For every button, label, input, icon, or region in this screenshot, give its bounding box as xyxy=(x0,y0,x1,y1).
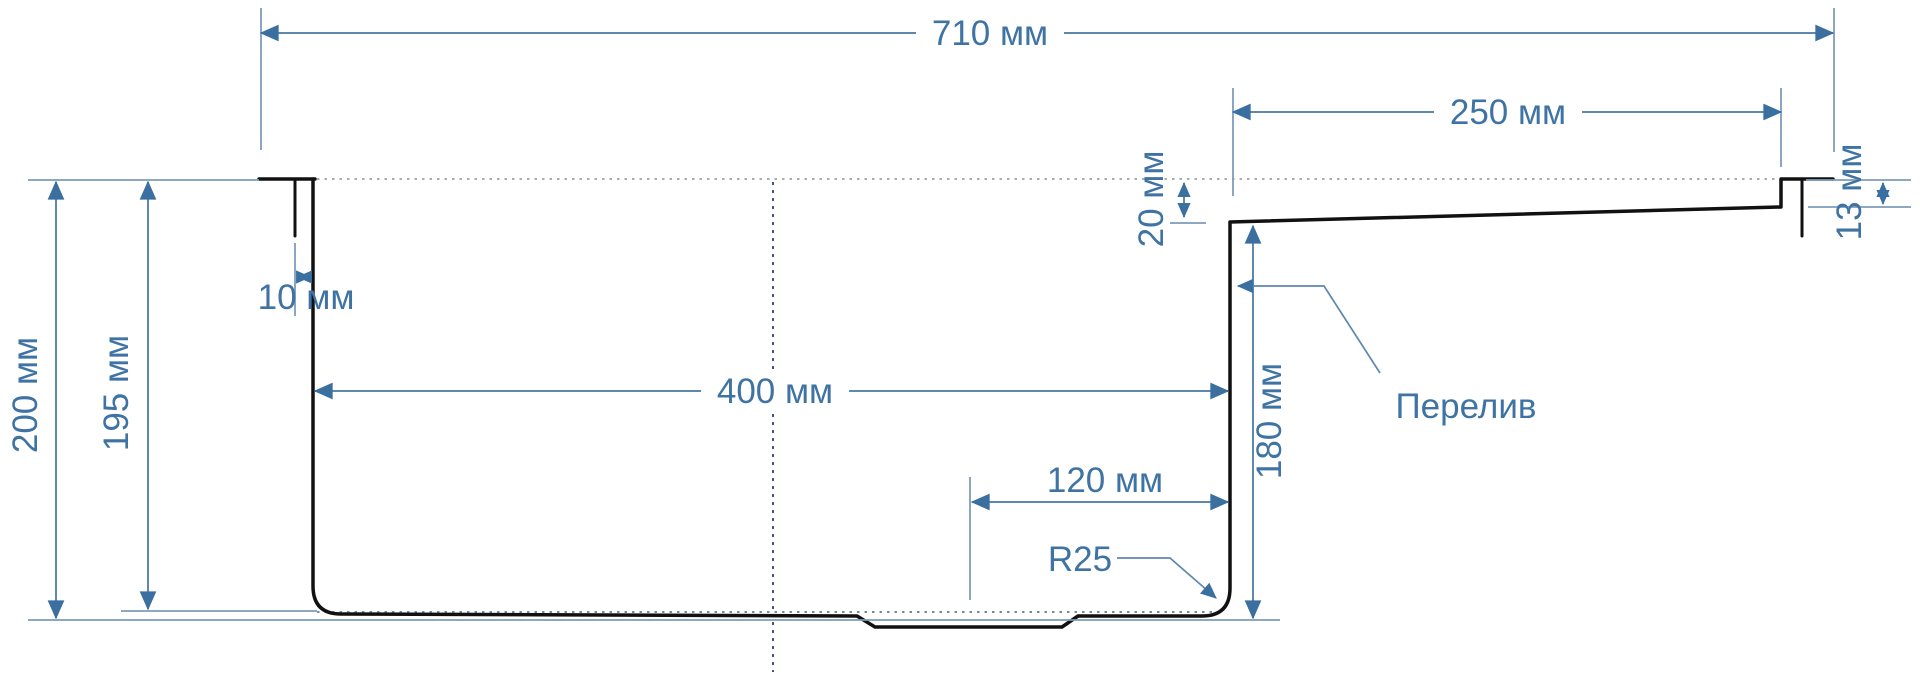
reference-lines xyxy=(317,179,1779,672)
dimension-label: 195 мм xyxy=(97,335,136,451)
dim-bowl-width: 400 мм xyxy=(315,371,1228,411)
dimension-label: 400 мм xyxy=(717,372,833,411)
dim-drain-offset: 120 мм xyxy=(970,461,1228,600)
dim-inner-depth: 195 мм xyxy=(97,182,317,611)
dimension-label: 250 мм xyxy=(1450,93,1566,132)
dim-drainboard-drop: 20 мм xyxy=(1132,151,1206,248)
dim-rim-edge-height: 13 мм xyxy=(1806,144,1911,241)
radius-label: R25 xyxy=(1048,540,1112,579)
dim-overall-width: 710 мм xyxy=(261,8,1834,152)
dimension-label: 710 мм xyxy=(932,14,1048,53)
dimension-label: 10 мм xyxy=(258,278,355,317)
dim-mounting-lip: 10 мм xyxy=(258,243,355,317)
dimension-label: 120 мм xyxy=(1047,461,1163,500)
overflow-label: Перелив xyxy=(1396,387,1537,426)
sink-dimension-drawing: 710 мм 250 мм 400 мм 120 мм 200 мм 195 м… xyxy=(0,0,1920,684)
dimension-label: 20 мм xyxy=(1132,151,1171,248)
leader-line xyxy=(1117,558,1216,598)
technical-drawing: 710 мм 250 мм 400 мм 120 мм 200 мм 195 м… xyxy=(0,0,1920,684)
sink-outline xyxy=(259,179,1833,627)
dimension-label: 200 мм xyxy=(6,337,45,453)
annotation-corner-radius: R25 xyxy=(1048,540,1216,598)
dimension-label: 180 мм xyxy=(1250,363,1289,479)
leader-line xyxy=(1238,286,1380,373)
dimension-label: 13 мм xyxy=(1830,144,1869,241)
dim-bowl-depth: 180 мм xyxy=(1250,226,1289,618)
